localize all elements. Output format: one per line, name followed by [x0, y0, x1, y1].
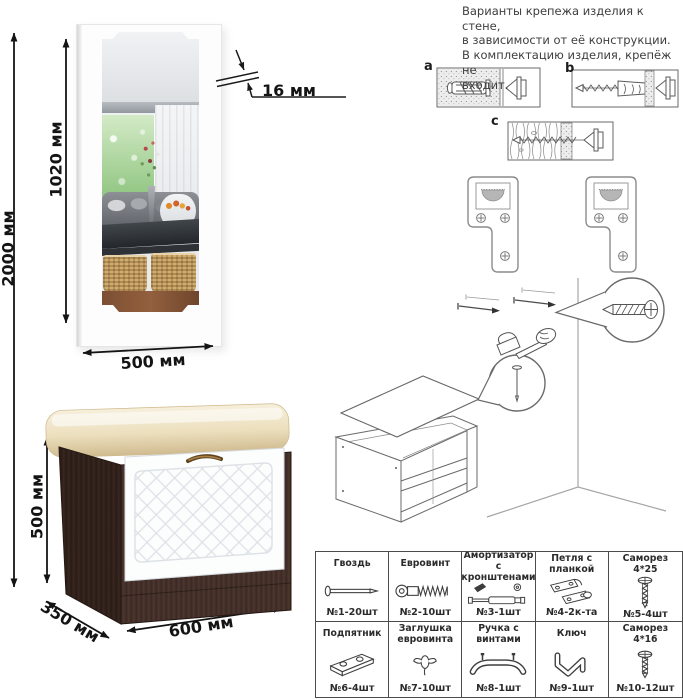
table-cell: Ключ №9-1шт: [536, 622, 609, 697]
assembly-scene: [336, 278, 666, 522]
hex-key-icon: [541, 649, 603, 679]
glide-icon: [321, 649, 383, 679]
table-cell: Подпятник №6-4шт: [316, 622, 389, 697]
total-height-label: 2000 мм: [0, 199, 18, 299]
bench-illustration: [45, 403, 291, 624]
nails: [458, 288, 556, 314]
screw-callout: [556, 278, 664, 342]
gas-lift-icon: [467, 581, 529, 607]
euro-screw-icon: [394, 578, 456, 604]
table-cell: Саморез 4*16 №10-12шт: [609, 622, 682, 697]
diagram-b-label: b: [565, 61, 574, 76]
table-cell: Петля с планкой №4-2к-та: [536, 552, 609, 622]
parts-table: Гвоздь №1-20шт Евровинт №2-10ш: [315, 551, 683, 698]
hinge-icon: [541, 576, 603, 606]
hammer-icon: [497, 326, 558, 359]
table-cell: Саморез 4*25 №5-4шт: [609, 552, 682, 622]
screw-short-icon: [614, 649, 676, 679]
table-cell: Гвоздь №1-20шт: [316, 552, 389, 622]
panel-thickness-label: 16 мм: [262, 81, 342, 100]
wall-mount-diagram-c: [508, 122, 613, 160]
diagram-a-label: a: [424, 59, 433, 74]
table-cell: Евровинт №2-10шт: [389, 552, 462, 622]
mount-bracket-right: [586, 177, 636, 272]
mirror-height-label: 1020 мм: [47, 110, 66, 210]
table-cell: Амортизатор с кронштенами №3-1шт: [462, 552, 535, 622]
handle-icon: [467, 650, 529, 678]
hammer-callout: [478, 326, 558, 411]
mounting-note: Варианты крепежа изделия к стене, в зави…: [462, 4, 682, 92]
bench-height-label: 500 мм: [28, 457, 47, 557]
table-cell: Ручка с винтами №8-1шт: [462, 622, 535, 697]
table-cell: Заглушка евровинта №7-10шт: [389, 622, 462, 697]
cap-icon: [394, 651, 456, 677]
mount-bracket-left: [468, 177, 518, 272]
diagram-c-label: c: [491, 114, 499, 129]
assembly-instruction-sheet: Варианты крепежа изделия к стене, в зави…: [0, 0, 683, 700]
screw-long-icon: [614, 575, 676, 609]
nail-icon: [321, 579, 383, 603]
